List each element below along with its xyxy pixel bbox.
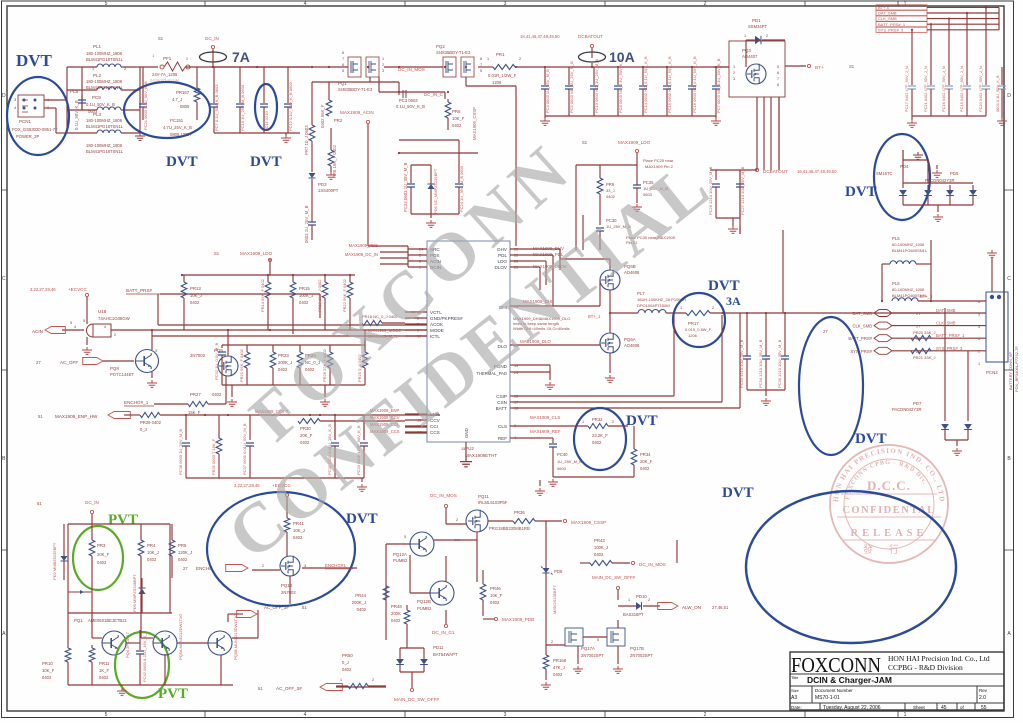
svg-text:5: 5 [70,321,72,325]
svg-text:PR14 56K_F 0402: PR14 56K_F 0402 [260,278,265,312]
svg-text:PC27 1210 10U_25V_M_B: PC27 1210 10U_25V_M_B [740,166,745,215]
svg-text:DVT: DVT [845,184,877,200]
svg-text:PC16 0402 47P_50V_J_N: PC16 0402 47P_50V_J_N [941,66,946,112]
svg-text:PC12 0.1U_50V_K_B 0603: PC12 0.1U_50V_K_B 0603 [288,82,293,131]
svg-text:0402: 0402 [97,560,107,565]
svg-text:16,41,46,47,48,49,50: 16,41,46,47,48,49,50 [797,169,837,174]
svg-text:FOX_BP3406L-P7232-7F: FOX_BP3406L-P7232-7F [1014,346,1019,392]
svg-text:MAIN_DC_SW_OFF#: MAIN_DC_SW_OFF# [592,575,635,580]
svg-text:PQ17B: PQ17B [630,646,644,651]
svg-text:FOXCONN: FOXCONN [791,653,881,677]
svg-text:PQ12B: PQ12B [417,599,431,604]
svg-text:S1: S1 [158,36,164,41]
svg-text:BAS316PT: BAS316PT [623,612,644,617]
svg-text:1: 1 [904,1,907,7]
svg-text:PR17: PR17 [688,321,699,326]
svg-text:PD1: PD1 [752,18,761,23]
svg-text:PACDN042Y3R: PACDN042Y3R [925,178,954,183]
svg-text:AC_OFF_3#: AC_OFF_3# [276,686,302,691]
svg-text:MAX1909_ENP_HW: MAX1909_ENP_HW [55,414,98,419]
svg-text:PR1: PR1 [496,52,505,57]
svg-text:10K_F: 10K_F [452,116,465,121]
svg-text:1: 1 [744,34,746,38]
svg-text:0.1U_50V_K_B: 0.1U_50V_K_B [396,104,425,109]
svg-text:2N7002SPT: 2N7002SPT [630,653,653,658]
svg-text:180-100MHZ_1806: 180-100MHZ_1806 [86,143,123,148]
svg-text:PC17 0402 47P_50V_J_N: PC17 0402 47P_50V_J_N [904,66,909,112]
svg-text:DAT_SMB: DAT_SMB [878,11,897,16]
svg-text:S1: S1 [849,64,855,69]
svg-text:27,46,51: 27,46,51 [712,605,729,610]
svg-text:24V-7A_1206: 24V-7A_1206 [152,72,178,77]
svg-text:PD6 MMPZS246BPT: PD6 MMPZS246BPT [132,574,137,612]
svg-text:PQ2: PQ2 [436,44,445,49]
svg-text:7A: 7A [232,49,250,65]
svg-text:10K_F: 10K_F [42,668,55,673]
svg-text:PQ5B MUN5213DW1T1G: PQ5B MUN5213DW1T1G [233,614,238,660]
svg-text:180-100MHZ_1806: 180-100MHZ_1806 [86,118,123,123]
svg-text:6: 6 [342,63,344,67]
svg-text:PC15 0402 47P_50V_J_N: PC15 0402 47P_50V_J_N [959,66,964,112]
svg-text:180-100MHZ_1806: 180-100MHZ_1806 [86,79,123,84]
svg-text:4: 4 [304,712,307,718]
svg-text:2N7002: 2N7002 [190,353,206,358]
svg-text:PQ3: PQ3 [742,48,751,53]
svg-text:3A: 3A [726,294,741,308]
svg-text:3: 3 [733,77,735,81]
svg-text:100K_J: 100K_J [299,293,313,298]
svg-text:PR48: PR48 [391,604,402,609]
svg-text:PVT: PVT [158,686,188,702]
svg-text:D: D [2,93,6,99]
svg-text:MAX1909_DC_IN: MAX1909_DC_IN [345,252,378,257]
svg-text:2: 2 [114,333,116,337]
svg-text:PL2: PL2 [93,73,102,78]
svg-text:PR50: PR50 [342,653,353,658]
svg-text:SM15TC: SM15TC [876,171,893,176]
svg-text:HON HAI Precision Ind. Co., Lt: HON HAI Precision Ind. Co., Ltd [888,654,990,663]
svg-text:PD4: PD4 [900,164,909,169]
svg-text:5: 5 [404,535,406,539]
svg-text:DC_IN: DC_IN [85,500,99,505]
svg-text:PQ8: PQ8 [110,366,119,371]
svg-text:47K_J: 47K_J [553,665,565,670]
svg-text:CCPBG - R&D Division: CCPBG - R&D Division [888,663,963,672]
svg-text:1: 1 [92,67,94,71]
svg-text:BLM41PG18TSN1L: BLM41PG18TSN1L [86,124,124,129]
svg-text:10K_J: 10K_J [190,293,202,298]
svg-text:PC21 0402 47P_50V_J_N: PC21 0402 47P_50V_J_N [923,66,928,112]
svg-text:6: 6 [978,300,980,304]
svg-text:4: 4 [304,1,307,7]
svg-text:PC15 0603 NC_0.1U_50V_K_B: PC15 0603 NC_0.1U_50V_K_B [667,56,672,113]
svg-text:PR10: PR10 [42,661,53,666]
svg-text:2: 2 [766,34,768,38]
svg-text:0603: 0603 [88,109,98,114]
svg-text:PR44: PR44 [355,593,366,598]
svg-text:PVT: PVT [108,512,138,528]
svg-text:200K_J: 200K_J [352,600,366,605]
svg-text:PR46: PR46 [490,586,501,591]
svg-text:5: 5 [777,65,779,69]
svg-text:PC151: PC151 [170,118,184,123]
svg-text:3: 3 [155,349,157,353]
svg-text:10K_J: 10K_J [147,550,159,555]
svg-text:BT+: BT+ [815,65,824,70]
svg-text:PR31 0603 7.15K_F: PR31 0603 7.15K_F [211,438,216,475]
svg-text:PUMB2: PUMB2 [417,606,432,611]
svg-text:0402: 0402 [342,667,352,672]
svg-text:4.7_J: 4.7_J [172,97,182,102]
svg-text:180-100MHZ_1806: 180-100MHZ_1806 [86,51,123,56]
svg-text:BT+_4: BT+_4 [920,294,933,299]
svg-text:A3: A3 [791,695,797,701]
svg-text:5: 5 [597,638,599,642]
svg-text:MAX1909_ACIN: MAX1909_ACIN [340,110,374,115]
svg-text:+ECVCC: +ECVCC [68,287,87,292]
svg-text:1: 1 [487,57,489,61]
svg-text:3: 3 [504,1,507,7]
svg-text:POTC144ET: POTC144ET [110,372,134,377]
svg-text:PR27: PR27 [190,392,201,397]
svg-text:PU2: PU2 [465,446,474,451]
svg-text:3: 3 [304,564,306,568]
svg-text:PUMB2: PUMB2 [393,558,408,563]
svg-text:2: 2 [704,712,707,718]
svg-text:PQ13: PQ13 [281,583,293,588]
svg-text:PC22 0603 1U_35V_M_B: PC22 0603 1U_35V_M_B [403,162,408,212]
svg-text:IRLML5103PbF: IRLML5103PbF [478,500,508,505]
svg-text:發行: 發行 [863,543,915,556]
svg-text:0.1U_50V_K_B: 0.1U_50V_K_B [86,102,115,107]
svg-text:0603 1U_25V_M_B: 0603 1U_25V_M_B [304,205,309,243]
svg-text:PR13: PR13 [190,286,201,291]
svg-text:SYS_PRS#: SYS_PRS# [850,349,872,354]
svg-text:1SS400PT: 1SS400PT [318,188,339,193]
svg-text:DC_IN_MOS: DC_IN_MOS [639,562,666,567]
svg-text:0402: 0402 [592,440,602,445]
svg-text:2: 2 [612,420,614,424]
svg-text:0402: 0402 [299,300,309,305]
svg-text:DCBATOUT: DCBATOUT [763,169,788,174]
svg-text:PR168: PR168 [553,658,567,663]
svg-text:PC9: PC9 [92,95,101,100]
svg-text:PD2 MMBZ5235BPT: PD2 MMBZ5235BPT [52,542,57,580]
svg-text:PC14 0603 NC_0.1U_50V_K_B: PC14 0603 NC_0.1U_50V_K_B [643,56,648,113]
svg-text:MAX1909_REF: MAX1909_REF [530,429,561,434]
svg-text:0402: 0402 [553,672,563,677]
svg-text:DVT: DVT [346,511,378,527]
svg-text:PR9: PR9 [606,182,615,187]
svg-text:PC38 0603 1U_35V_M_B: PC38 0603 1U_35V_M_B [178,429,183,475]
svg-text:PR3: PR3 [97,543,106,548]
svg-text:PR11: PR11 [99,661,110,666]
svg-text:DC_IN_C: DC_IN_C [424,92,443,97]
svg-text:1K_F: 1K_F [99,668,109,673]
svg-text:PR5: PR5 [178,543,187,548]
svg-text:7: 7 [777,77,779,81]
svg-text:BATT_PRS#: BATT_PRS# [126,288,152,293]
svg-text:1: 1 [904,712,907,718]
svg-text:PR21 95K_F 0402: PR21 95K_F 0402 [239,348,244,382]
svg-text:BATTERY CONN_6P: BATTERY CONN_6P [1008,352,1013,390]
svg-text:MAX1909_CSSP: MAX1909_CSSP [472,107,477,140]
svg-text:PC16 0603 NC_0.1U_50V_K_B: PC16 0603 NC_0.1U_50V_K_B [692,56,697,113]
svg-text:DVT: DVT [250,154,282,170]
svg-text:1: 1 [733,65,735,69]
svg-text:1: 1 [628,598,630,602]
svg-text:2: 2 [124,67,126,71]
svg-text:PC21 0603 0.1U_50V_K_B: PC21 0603 0.1U_50V_K_B [143,81,148,130]
svg-text:AME8501BEJETB21: AME8501BEJETB21 [88,618,128,623]
svg-text:0402: 0402 [99,675,109,680]
svg-text:PD10: PD10 [636,594,647,599]
svg-text:DVT: DVT [708,278,740,294]
svg-text:60-100MHZ_1006: 60-100MHZ_1006 [892,242,925,247]
svg-text:7: 7 [342,57,344,61]
svg-text:1: 1 [680,306,682,310]
svg-text:PCN2: PCN2 [986,370,998,375]
svg-text:2: 2 [648,598,650,602]
svg-text:MODE: MODE [430,328,444,333]
svg-text:S1: S1 [214,251,220,256]
svg-text:BT+_1: BT+_1 [588,314,601,319]
svg-text:0.1U_50V_K_B: 0.1U_50V_K_B [74,100,79,130]
svg-text:DAT_SMB: DAT_SMB [936,308,956,313]
svg-text:PR19 10K_J 0402: PR19 10K_J 0402 [317,279,322,312]
svg-text:AC_OFF: AC_OFF [60,360,78,365]
svg-text:PD8: PD8 [554,569,563,574]
svg-text:5: 5 [342,69,344,73]
svg-text:BLM41PG18TSN1L: BLM41PG18TSN1L [86,57,124,62]
svg-text:GND: GND [464,428,469,438]
svg-text:SI4835BDY-T1-E3: SI4835BDY-T1-E3 [436,50,471,55]
svg-text:PC8: PC8 [70,89,79,94]
svg-text:MAX1909_PDB: MAX1909_PDB [502,617,534,622]
svg-text:MAX1909_CLS: MAX1909_CLS [530,415,560,420]
svg-text:SI4835BDY-T1-E3: SI4835BDY-T1-E3 [338,87,373,92]
svg-text:PQ17A: PQ17A [581,646,595,651]
svg-text:2: 2 [712,306,714,310]
svg-text:PR4: PR4 [147,543,156,548]
svg-text:5: 5 [978,312,980,316]
svg-text:PL7: PL7 [637,291,645,296]
svg-text:BLM41PG18TSN1L: BLM41PG18TSN1L [86,149,124,154]
svg-text:PQ12A: PQ12A [393,552,407,557]
svg-text:PQ11: PQ11 [478,494,489,499]
svg-text:20K_F: 20K_F [97,552,110,557]
svg-text:20K_F: 20K_F [640,459,653,464]
svg-text:5: 5 [105,712,108,718]
svg-text:0402 56K_F: 0402 56K_F [320,104,325,128]
svg-text:7: 7 [480,63,482,67]
svg-text:1: 1 [340,678,342,682]
svg-text:MAX1909_LDO: MAX1909_LDO [618,140,651,145]
svg-text:6: 6 [777,71,779,75]
svg-text:0603 0.1U_50V_K_B: 0603 0.1U_50V_K_B [995,75,1000,112]
svg-text:CSN: CSN [497,400,507,405]
svg-text:5: 5 [83,319,85,323]
svg-text:Size: Size [791,688,800,693]
svg-text:PL5: PL5 [892,236,900,241]
svg-text:Title: Title [791,675,799,680]
svg-text:DVT: DVT [626,413,658,429]
svg-text:FOX_GS53020-0851-7F: FOX_GS53020-0851-7F [12,127,58,132]
svg-text:PC32 1U_0.5V_M_B: PC32 1U_0.5V_M_B [214,343,219,380]
svg-text:1206: 1206 [688,333,698,338]
svg-text:PR36: PR36 [514,510,525,515]
svg-text:Date:: Date: [791,705,802,710]
svg-text:PR32: PR32 [592,417,603,422]
svg-text:PC7 0.1U_50V_K_B 0603: PC7 0.1U_50V_K_B 0603 [214,84,219,131]
svg-text:BLM41PG600SN1L: BLM41PG600SN1L [892,248,928,253]
svg-text:ALW_ON: ALW_ON [682,605,701,610]
svg-text:PC35 1210 10U_35V_M_B: PC35 1210 10U_35V_M_B [777,339,782,388]
svg-text:4.7U_25V_K_B: 4.7U_25V_K_B [163,125,192,130]
svg-text:51: 51 [258,686,263,691]
svg-text:8: 8 [342,51,344,55]
svg-text:27: 27 [823,329,828,334]
svg-text:DC_IN_G1: DC_IN_G1 [432,630,455,635]
svg-text:51: 51 [38,414,43,419]
svg-text:PC37 0601 0.01U_50V_M_B: PC37 0601 0.01U_50V_M_B [242,423,247,475]
svg-text:0805: 0805 [180,104,190,109]
svg-text:2N7002SPT: 2N7002SPT [581,653,604,658]
svg-text:BAT54WAPT: BAT54WAPT [433,652,458,657]
svg-text:DVT: DVT [722,485,754,501]
svg-text:PR2: PR2 [334,118,343,123]
svg-text:PQ1: PQ1 [74,618,83,623]
svg-text:CLK_SMB: CLK_SMB [852,324,872,329]
svg-text:AO4407: AO4407 [742,54,758,59]
svg-text:BT+ 4: BT+ 4 [878,5,890,10]
svg-text:200K: 200K [391,611,401,616]
svg-text:1: 1 [382,57,384,61]
svg-text:BATT_PRS#_1: BATT_PRS#_1 [936,333,965,338]
svg-text:DC_IN: DC_IN [205,36,219,41]
svg-text:PQ6A: PQ6A [624,337,636,342]
svg-text:45: 45 [941,705,947,711]
svg-text:DLOV: DLOV [494,265,507,270]
svg-text:0402: 0402 [640,466,650,471]
svg-text:MS70-1-01: MS70-1-01 [815,695,840,701]
svg-text:2: 2 [733,71,735,75]
svg-text:DC_IN_MOS: DC_IN_MOS [398,67,425,72]
svg-text:55: 55 [981,705,987,711]
svg-text:51: 51 [37,501,42,506]
svg-text:MAX1909ETHT: MAX1909ETHT [465,453,497,458]
svg-text:PC10 1U_25V_M_B 0603: PC10 1U_25V_M_B 0603 [240,84,245,131]
svg-text:ACIN: ACIN [32,329,43,334]
svg-text:AO4606: AO4606 [624,343,640,348]
svg-text:Sheet: Sheet [913,705,926,710]
svg-text:PF1: PF1 [163,56,172,61]
svg-text:ENCHG#_1: ENCHG#_1 [124,400,149,405]
svg-text:PC40: PC40 [557,452,568,457]
svg-text:0603: 0603 [557,466,567,471]
svg-text:0402: 0402 [190,300,200,305]
svg-text:S1: S1 [582,140,588,145]
svg-text:0_J: 0_J [140,427,147,432]
svg-text:PL1: PL1 [93,44,102,49]
svg-text:2.0: 2.0 [979,695,986,701]
svg-text:PC5 0603 NC_1U_25V_M_B: PC5 0603 NC_1U_25V_M_B [569,61,574,113]
svg-text:PC20 0402 47P_50V_J_N: PC20 0402 47P_50V_J_N [978,66,983,112]
svg-text:PR6: PR6 [452,109,461,114]
svg-text:74AHC1G08GW: 74AHC1G08GW [98,316,131,321]
svg-text:MMV2S235BPT: MMV2S235BPT [552,585,557,614]
svg-text:PR21 33K_J: PR21 33K_J [913,355,935,360]
svg-text:CSIP: CSIP [496,394,507,399]
svg-text:100K_J: 100K_J [594,545,608,550]
svg-text:PR15: PR15 [299,286,310,291]
svg-text:C: C [2,276,6,282]
svg-text:BATT_PRS#: BATT_PRS# [848,336,872,341]
svg-text:CLS: CLS [498,424,507,429]
svg-text:SYS_PRS#_3: SYS_PRS#_3 [936,346,963,351]
svg-text:0402: 0402 [490,600,500,605]
svg-text:C: C [1007,276,1011,282]
svg-text:0402: 0402 [147,557,157,562]
svg-text:120K_J: 120K_J [178,550,192,555]
svg-text:27: 27 [36,360,41,365]
svg-text:BATT_PRS#_1: BATT_PRS#_1 [878,22,906,27]
svg-text:D.C.C.: D.C.C. [867,478,911,493]
svg-text:PR167: PR167 [176,90,190,95]
svg-text:0.015_0.5W_F: 0.015_0.5W_F [685,327,712,332]
svg-text:10K_F: 10K_F [490,593,503,598]
svg-text:60-100MHZ_1006: 60-100MHZ_1006 [892,287,925,292]
svg-text:RELEASE: RELEASE [850,528,927,539]
svg-text:2: 2 [978,350,980,354]
svg-text:PACDN042Y3R: PACDN042Y3R [892,407,921,412]
svg-text:2: 2 [704,1,707,7]
svg-text:2: 2 [382,63,384,67]
svg-text:ENCHG#1: ENCHG#1 [325,563,346,568]
svg-text:U18: U18 [98,309,107,314]
svg-text:PC11 1210: PC11 1210 [264,111,269,131]
svg-text:PR29 0402: PR29 0402 [140,420,162,425]
svg-text:0402: 0402 [357,607,367,612]
svg-text:51: 51 [302,605,307,610]
svg-text:PR7 10_J 0603: PR7 10_J 0603 [304,125,309,155]
svg-text:3,22,27,28,46: 3,22,27,28,46 [30,287,56,292]
svg-text:0402: 0402 [594,552,604,557]
svg-text:8: 8 [480,57,482,61]
svg-text:3: 3 [382,69,384,73]
svg-text:8: 8 [777,83,779,87]
svg-text:DPO1004PT150M: DPO1004PT150M [637,303,670,308]
svg-text:Document Number: Document Number [815,688,853,693]
svg-text:Rev: Rev [979,688,988,693]
svg-text:5: 5 [105,1,108,7]
svg-text:27: 27 [183,566,188,571]
svg-text:3: 3 [978,337,980,341]
svg-text:MAX1909_CSSP: MAX1909_CSSP [571,520,606,525]
svg-text:D: D [1007,93,1011,99]
svg-text:PRG18BB330MB1RB: PRG18BB330MB1RB [489,526,530,531]
svg-text:10A: 10A [609,49,635,65]
svg-text:DAT_SMB: DAT_SMB [853,311,873,316]
svg-text:1: 1 [978,362,980,366]
svg-text:DVT: DVT [166,154,198,170]
svg-text:2: 2 [372,678,374,682]
svg-text:PQ5A MUN5213DW1T1G: PQ5A MUN5213DW1T1G [178,614,183,660]
svg-text:1206: 1206 [492,80,502,85]
svg-text:0402: 0402 [391,618,401,623]
svg-text:SSM34PT: SSM34PT [748,24,768,29]
svg-text:0402: 0402 [452,123,462,128]
